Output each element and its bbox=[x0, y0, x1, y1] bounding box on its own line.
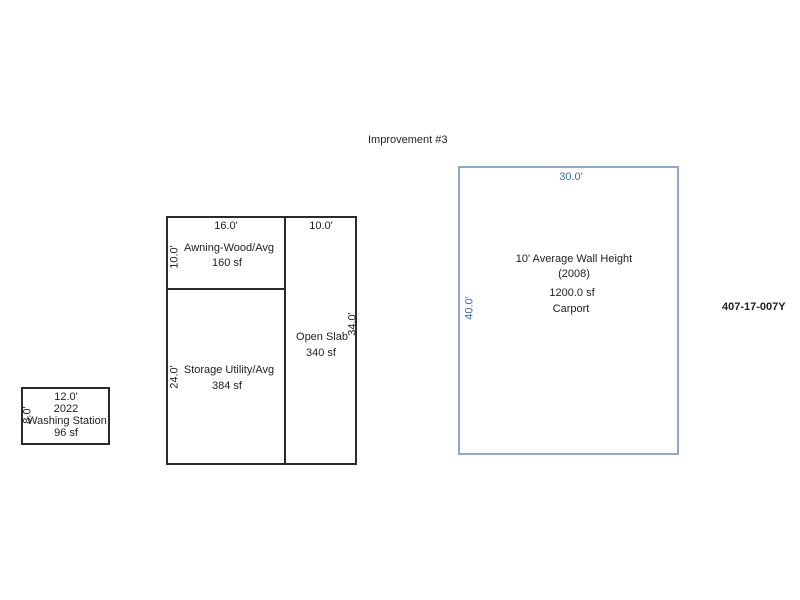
awning-name-label: Awning-Wood/Avg bbox=[184, 242, 274, 255]
parcel-id-label: 407-17-007Y bbox=[722, 301, 786, 314]
storage-name-label: Storage Utility/Avg bbox=[184, 364, 274, 377]
carport-top-dimension: 30.0' bbox=[559, 171, 583, 184]
awning-top-dimension: 16.0' bbox=[214, 220, 238, 233]
carport-wall-height-label: 10' Average Wall Height bbox=[516, 253, 632, 266]
awning-left-dimension: 10.0' bbox=[169, 245, 182, 269]
carport-left-dimension: 40.0' bbox=[464, 296, 477, 320]
storage-left-dimension: 24.0' bbox=[169, 365, 182, 389]
carport-name-label: Carport bbox=[553, 303, 590, 316]
awning-storage-divider-line bbox=[166, 288, 286, 290]
carport-year-label: (2008) bbox=[558, 268, 590, 281]
washing-station-area-label: 96 sf bbox=[54, 427, 78, 440]
openslab-right-dimension: 34.0' bbox=[347, 312, 360, 336]
improvement-title: Improvement #3 bbox=[368, 134, 447, 147]
openslab-name-label: Open Slab bbox=[296, 331, 348, 344]
openslab-area-label: 340 sf bbox=[306, 347, 336, 360]
openslab-divider-line bbox=[284, 216, 286, 465]
storage-area-label: 384 sf bbox=[212, 380, 242, 393]
sketch-canvas: Improvement #3 407-17-007Y 16.0' 10.0' A… bbox=[0, 0, 800, 600]
awning-area-label: 160 sf bbox=[212, 257, 242, 270]
carport-area-label: 1200.0 sf bbox=[549, 287, 594, 300]
openslab-top-dimension: 10.0' bbox=[309, 220, 333, 233]
